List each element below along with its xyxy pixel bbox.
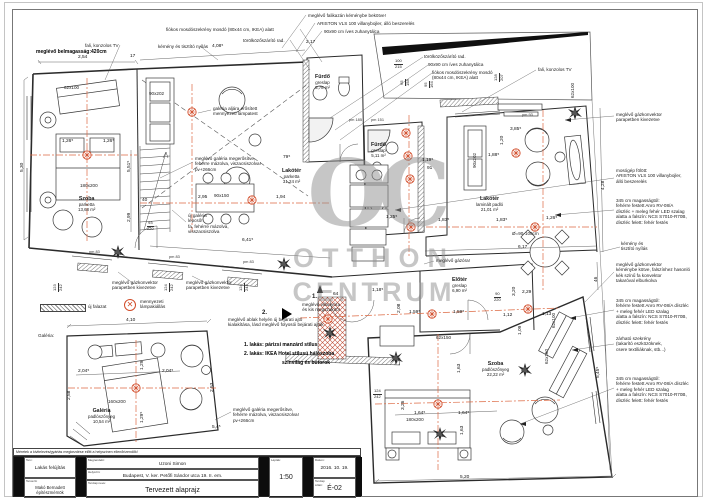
dimension: 1,64⁵ [414,411,425,417]
annotation: 90x90 cm íves zuhanytálca [324,29,379,34]
field-datum: Dátum: 2016. 10. 19. [313,457,356,478]
annotation: 345 cm magasságtól:fehérre festett Anro … [616,376,689,403]
dimension: 1,26⁵ [62,139,73,145]
dimension: 1,26⁵ [546,216,557,222]
leptek-value: 1:50 [270,474,302,481]
annotation: törölközőszárító rad. [424,54,466,59]
furniture-label: 62x100 [570,83,575,98]
room-label: Fürdőgreslap5,78 m² [315,74,330,91]
helyszin-value: Budapest, V. ker. Petőfi Sándor utca 19.… [87,474,258,479]
dimension: 6,41⁵ [242,238,253,244]
furniture-label: 62x160 [544,349,549,364]
furniture-label: 62x150 [436,335,451,340]
pm-label: pm 83 [243,260,254,265]
field-tervezo: Tervező: Makó Bernadett építészmérnök [24,478,76,499]
furniture-szoba [40,80,120,237]
dimension: 5,4⁵ [212,425,221,431]
annotation: meglévő gázkonvektorparapetben kivezetve [616,112,662,123]
dimension: 4,28 [601,181,607,190]
dimension: 2,54 [78,55,87,61]
annotation: meglévő gázkonvektorparapetben kivezetve [186,280,232,291]
annotation: új galérialépcső!fa, fehérre mázolva,vis… [188,213,229,235]
field-terv: Terv: Lakás felújítás [24,457,76,478]
annotation: kémény éstisztító nyílás [621,241,648,252]
dim-fraction: 123242 [53,283,63,292]
furniture-label: 180x200 [406,417,424,422]
annotation: 345 cm magasságtól:fehérre festett Anro … [616,298,689,325]
annotation: ARISTON VLS 100 villanybojler, álló besz… [317,21,414,26]
annotation: galéria aljára erősítettmennyezeti lámpa… [213,106,258,117]
room-label: Előtérgreslap6,90 m² [452,277,467,294]
furniture-label: 90x202 [149,91,164,96]
annotation: 345 cm magasságtól:fehérre festett Anro … [616,198,687,225]
dim-fraction: 90220 [494,292,501,302]
stair [140,144,170,234]
dimension: 1,13 [542,312,551,318]
furniture-label: 62x100 [64,85,79,90]
datum-label: Dátum: [315,458,325,462]
annotation: törölközőszárító rad. [243,38,285,43]
annotation: zárható szekrény(takarító eszközöknek,cs… [616,336,666,352]
dim-fraction: 124242 [239,283,249,292]
datum-value: 2016. 10. 19. [314,466,355,471]
annotation: meglévő gázkonvektorparapetben kivezetve [112,280,158,291]
terv-value: Lakás felújítás [25,466,75,471]
floor-plan-linework [0,0,707,500]
room-label: Lakótérparketta31,24 m² [282,168,301,185]
annotation: meglévő galéria megerősítve,fehérre mázo… [195,156,261,172]
tervezo-label: Tervező: [26,479,37,483]
annotation: 1. lakás: párizsi manzárd stílus [244,343,317,349]
marker-1-arrow [317,285,323,293]
furniture-label: 160x200 [108,399,126,404]
pm-label: pm 151 [371,118,384,123]
annotation: fali, konzolos TV [538,67,572,72]
dimension: 1,59⁵ [409,310,420,316]
lamp-legend-icon: ✕ [124,299,136,311]
dimension: 1,63 [460,426,466,435]
dimension: 2,08 [397,304,403,313]
dimension: 40 [142,198,147,204]
room-label: Szobaparketta13,68 m² [78,196,95,213]
annotation: fiókos mosdószekrény mosdó(80x44 cm, IKE… [432,70,493,81]
dim-fraction: 128207 [494,73,504,82]
annotation: Galéria: [38,333,54,338]
dimension: 1,20 [500,136,506,145]
dim-fraction: 124242 [164,283,174,292]
dimension: 79⁵ [283,155,290,161]
dimension: 1,18⁵ [372,288,383,294]
dimension: 64 [333,292,338,298]
terv-label: Terv: [26,458,33,462]
dimension: 5,51⁵ [127,161,133,172]
tervlap-label: Tervlap neve: [88,481,106,485]
dimension: 1,64⁵ [458,411,469,417]
dimension: 1,09 [518,326,524,335]
title-block-note: Méretek a kivitelezés/gyártás megkezdése… [13,448,361,456]
dim-fraction: 95164 [424,81,434,88]
pm-label: pm 93 [522,113,533,118]
dimension: 1,29 [140,361,146,370]
pm-label: pm 83 [89,250,100,255]
furniture-label: 90x202 [472,153,477,168]
dimension: 1,83⁵ [438,218,449,224]
annotation: meglévő belmagasság:420cm [36,50,107,56]
dimension: 5,30 [20,163,26,172]
room-label: Szobapadlószőnyeg22,22 m² [482,361,509,378]
room-label: Galériapadlószőnyeg10,54 m² [88,408,115,425]
new-wall-legend-swatch [40,304,86,312]
dimension: 1,29⁵ [140,412,146,423]
site-boundary [592,100,612,477]
dimension: 91 [427,166,432,172]
field-helyszin: Helyszín: Budapest, V. ker. Petőfi Sándo… [86,469,259,480]
title-block: Méretek a kivitelezés/gyártás megkezdése… [13,448,361,497]
dimension: 2,29 [522,290,531,296]
room-label: Lakótérlaminált padló21,01 m² [476,196,503,213]
dimension: 1,19⁵ [422,158,433,164]
dimension: 4,08⁵ [212,44,223,50]
lamp-legend-label: mennyezeti lámpakiállás [140,299,165,310]
flat-marker-1: 1. [312,294,317,300]
annotation: meglévő ablak helyén új bejárati ajtókia… [228,317,324,328]
dimension: 46 [594,277,600,282]
pm-label: pm 185 [349,118,362,123]
dimension: 1,12 [503,313,512,319]
field-szam: Tervlap szám: É-02 [313,478,356,499]
dimension: 17 [130,54,135,60]
dim-fraction: 124242 [373,389,382,399]
dimension: 2,04⁵ [162,369,173,375]
furniture-label: Ø=90-100cm [512,231,539,236]
dimension: 6,17 [518,245,527,251]
annotation: mosógép fölött:ARISTON VLS 100 villanybo… [616,168,682,184]
dimension: 1,25⁵ [386,215,397,221]
dimension: 4,10 [126,318,135,324]
dimension: 2,04⁵ [78,369,89,375]
black-wedge [382,32,588,55]
tervezo-value: Makó Bernadett építészmérnök [25,485,75,495]
dimension: 2,95 [198,195,207,201]
annotation: meglévő gázkonvektorkéménybe kötve, fals… [616,262,690,284]
annotation: meglévő gázóra! [436,258,470,263]
furniture-label: 62x100 [551,313,556,328]
dimension: 1,26⁵ [103,139,114,145]
dimension: 3,85⁵ [510,127,521,133]
room-label: Fürdőgreslap5,11 m² [371,142,386,159]
dimension: 3,26 [401,401,407,410]
dimension: 1,83⁵ [496,218,507,224]
dimension: 1,94 [276,195,285,201]
megrendelo-value: Uzoni Simon [87,462,258,467]
dimension: 1,88⁵ [488,153,499,159]
pm-label: pm 83 [169,255,180,260]
annotation: fali, konzolos TV [85,43,119,48]
annotation: meglévő villanyóraés kis megszakító! [264,302,340,313]
furniture-label: 90x150 [214,193,229,198]
dimension: 2,58 [67,391,73,400]
dimension: 3,20 [512,287,518,296]
furniture-label: 180x200 [80,183,98,188]
field-leptek: Lépték: 1:50 [269,457,303,498]
tervlap-value: Tervezett alaprajz [87,487,258,494]
furniture-galeria [70,342,211,446]
dimension: 2,99 [127,213,133,222]
dim-fraction: 100215 [394,59,403,69]
dim-fraction: 65158 [400,79,410,86]
bath-fixtures [309,77,398,261]
dimension: 5,45⁵ [596,367,602,378]
dimension: 2,53 [210,383,216,392]
annotation: szinvilág és bútorok [282,361,330,367]
annotation: 90x90 cm íves zuhanytálca [428,62,483,67]
annotation: fiókos mosdószekrény mosdó (80x44 cm, IK… [166,27,274,32]
title-block-main: Terv: Lakás felújítás Tervező: Makó Bern… [13,456,361,497]
annotation: 2. lakás: IKEA Hotel stílusú hálószoba [244,352,334,358]
dimension: 5,20 [460,475,469,481]
szam-value: É-02 [314,485,355,492]
annotation: meglévő falikazán kéménybe bekötve! [308,13,386,18]
dimension: 1,59⁵ [453,310,464,316]
field-tervlap: Tervlap neve: Tervezett alaprajz [86,480,259,498]
dimension: 2,17 [306,40,315,46]
dimension: 1,63 [457,364,463,373]
dim-fraction: 93220 [147,221,154,231]
new-wall-legend-label: új falazat [88,304,106,309]
annotation: meglévő galéria megerősítve,fehérre mázo… [233,407,299,423]
drawing-sheet: OC OTTHON CENTRUM új falazat ✕ mennyezet… [0,0,707,500]
field-megrendelo: Megrendelő: Uzoni Simon [86,457,259,469]
annotation: kémény és tisztító nyílás [158,44,208,49]
leptek-label: Lépték: [271,458,281,462]
furniture-bottom-room [380,312,587,460]
